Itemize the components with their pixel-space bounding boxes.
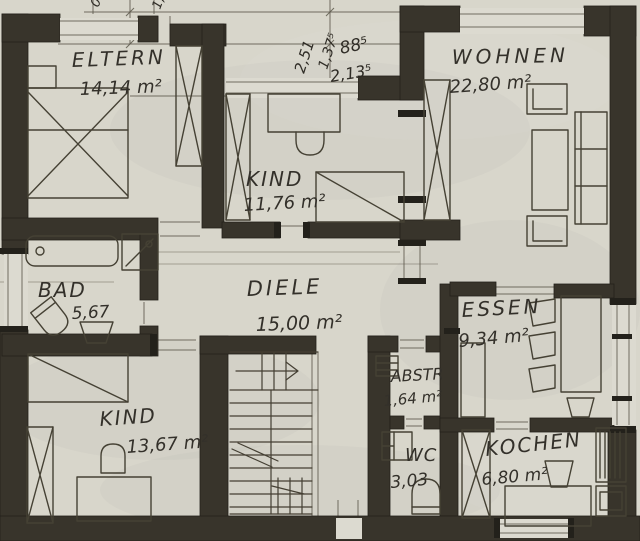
coffee-table [532,130,568,210]
wall-segment [390,416,404,429]
room-label-essen: ESSEN [461,294,542,322]
wall-segment [450,282,496,296]
nightstand [28,66,56,88]
room-label-eltern: ELTERN [71,45,166,72]
wall-segment [0,330,28,541]
wall-segment [440,430,458,516]
wall-segment [400,6,460,32]
chair [567,398,594,417]
floor-plan-drawing: ELTERN 14,14 m² KIND 11,76 m² WOHNEN 22,… [0,0,640,541]
room-label-abstr: ABSTR [389,364,444,386]
bathtub [26,236,118,266]
room-label-diele: DIELE [246,274,322,301]
dimension-fragment: 1, [150,0,168,11]
dimension-fragment: 0 [88,0,105,10]
room-label-kind-bottom: KIND [99,403,158,431]
room-area-kind-top: 11,76 m² [243,191,326,216]
wall-segment [200,336,316,354]
wall-segment [202,24,224,228]
wall-segment [440,284,458,430]
room-label-bad: BAD [38,278,87,302]
wall-segment [222,222,280,238]
sofa [575,112,607,224]
room-area-eltern: 14,14 m² [79,76,162,100]
room-label-wc: WC [405,445,437,466]
wall-segment [610,6,636,304]
room-area-wc: 3,03 [390,470,429,493]
wall-segment [2,14,60,42]
wall-segment [308,222,402,238]
room-area-bad: 5,67 [71,302,110,324]
room-area-abstr: 1,64 m² [383,387,443,410]
toilet [31,297,72,340]
wall-segment [400,220,460,240]
room-label-wohnen: WOHNEN [452,43,570,69]
wall-segment [138,16,158,42]
room-label-kind-top: KIND [246,167,303,191]
room-area-diele: 15,00 m² [255,311,343,336]
wall-segment [2,334,152,356]
wall-segment [368,336,398,352]
floor-plan: ELTERN 14,14 m² KIND 11,76 m² WOHNEN 22,… [0,0,640,541]
